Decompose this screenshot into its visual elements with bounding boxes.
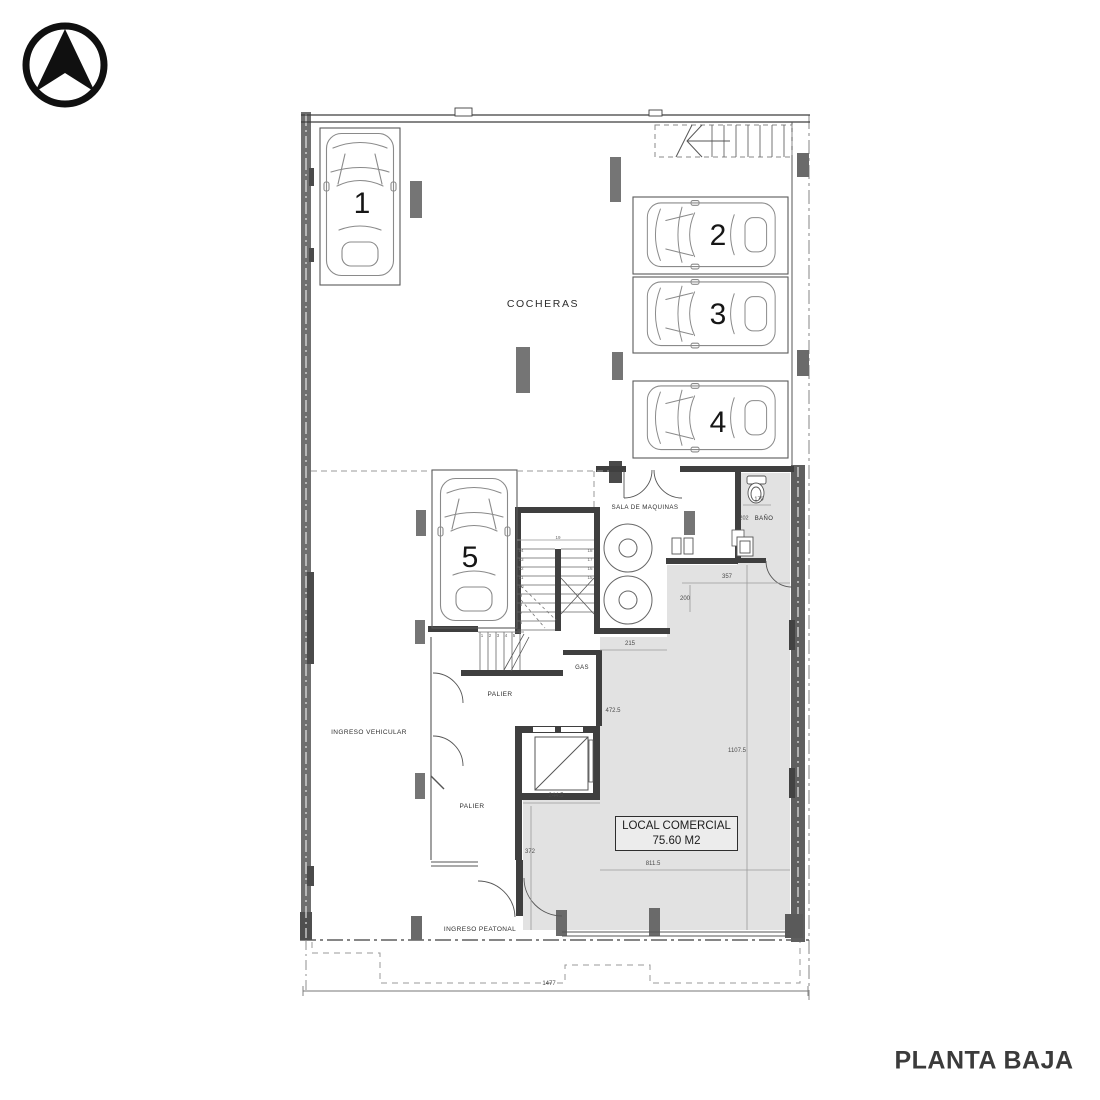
stair-step-number: 6: [520, 621, 523, 626]
stair-step-number: 3: [497, 634, 500, 639]
stair-step-number: 18: [587, 549, 592, 554]
local-comercial-name: LOCAL COMERCIAL: [622, 819, 731, 833]
stair-step-number: 17: [587, 558, 592, 563]
local-comercial-box: LOCAL COMERCIAL 75.60 M2: [615, 816, 738, 851]
dim-202: 202: [739, 516, 748, 522]
ramp-icon: [655, 125, 792, 157]
dim-200: 200: [680, 596, 690, 602]
dim-357: 357: [722, 574, 732, 580]
local-comercial-area: 75.60 M2: [653, 834, 701, 848]
label-palier-lower: PALIER: [459, 804, 484, 811]
parking-spot-number-3: 3: [710, 300, 727, 330]
page-title: PLANTA BAJA: [894, 1049, 1073, 1074]
dim-215: 215: [625, 641, 635, 647]
stair-step-number: 4: [505, 634, 508, 639]
car-icons: [324, 134, 775, 621]
stair-step-number: 11: [519, 576, 524, 581]
stair-step-number: 9: [520, 594, 523, 599]
dim-170: 170: [754, 497, 763, 503]
stair-step-number: 1: [481, 634, 484, 639]
parking-spot-number-1: 1: [354, 189, 371, 219]
stair-step-number: 2: [489, 634, 492, 639]
stair-step-number: 5: [513, 634, 516, 639]
stair-step-number: 13: [518, 558, 523, 563]
dim-1477: 1477: [542, 981, 555, 987]
parking-spot-number-5: 5: [462, 543, 479, 573]
dim-1107-5: 1107.5: [728, 748, 746, 754]
label-palier-upper: PALIER: [487, 692, 512, 699]
label-cocheras: COCHERAS: [507, 299, 579, 310]
dim-372: 372: [525, 849, 535, 855]
stair-top-number: 19: [555, 536, 560, 541]
floor-plan-svg: [0, 0, 1100, 1100]
dashed-lines: [311, 471, 609, 509]
dim-244-5: 244.5: [548, 793, 563, 799]
stair-step-number: 14: [518, 549, 523, 554]
parking-spot-number-4: 4: [710, 408, 727, 438]
label-bano: BAÑO: [755, 516, 774, 522]
stair-step-number: 15: [587, 576, 592, 581]
floor-plan-page: COCHERAS 1 2 3 4 5 SALA DE MAQUINAS BAÑO…: [0, 0, 1100, 1100]
stair-step-number: 8: [520, 603, 523, 608]
stair-step-number: 10: [518, 585, 523, 590]
label-ingreso-vehicular: INGRESO VEHICULAR: [331, 730, 407, 737]
stair-step-number: 12: [518, 567, 523, 572]
dim-811-5: 811.5: [646, 861, 661, 867]
parking-spot-number-2: 2: [710, 221, 727, 251]
stair-step-number: 7: [520, 612, 523, 617]
label-sala-de-maquinas: SALA DE MAQUINAS: [612, 505, 679, 511]
elevator-icon: [535, 737, 593, 790]
dim-472-5: 472.5: [605, 708, 620, 714]
stair-step-number: 16: [587, 567, 592, 572]
label-ingreso-peatonal: INGRESO PEATONAL: [444, 927, 516, 934]
label-gas: GAS: [575, 665, 589, 671]
